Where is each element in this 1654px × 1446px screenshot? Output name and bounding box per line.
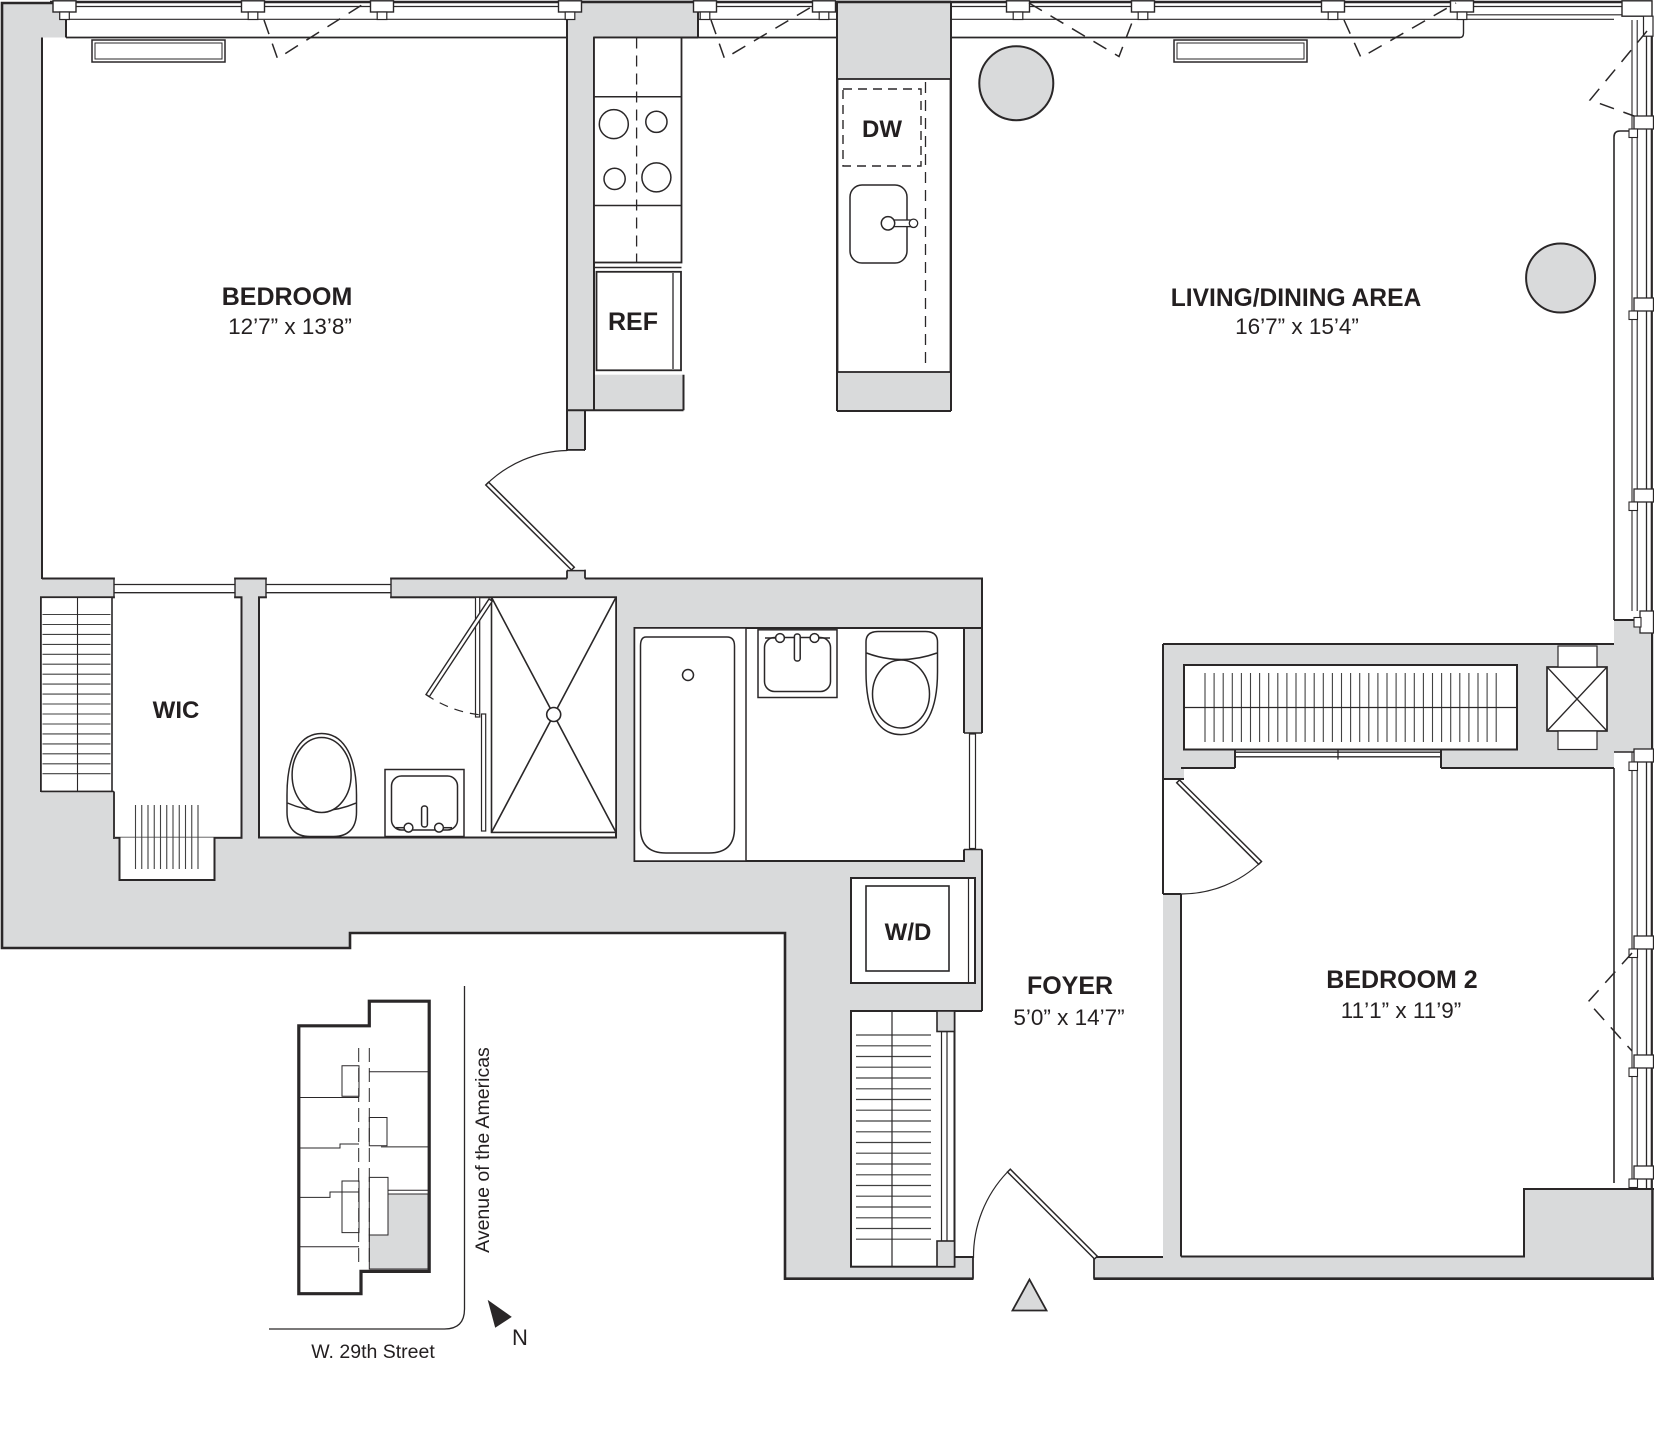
svg-text:LIVING/DINING AREA: LIVING/DINING AREA bbox=[1171, 285, 1422, 312]
svg-text:WIC: WIC bbox=[153, 697, 200, 724]
svg-text:5’0” x 14’7”: 5’0” x 14’7” bbox=[1013, 1005, 1124, 1030]
svg-text:Avenue of the Americas: Avenue of the Americas bbox=[472, 1047, 494, 1253]
svg-text:REF: REF bbox=[608, 308, 658, 336]
svg-text:W/D: W/D bbox=[885, 919, 932, 946]
svg-text:N: N bbox=[512, 1325, 528, 1350]
svg-text:DW: DW bbox=[862, 116, 902, 143]
svg-text:W. 29th Street: W. 29th Street bbox=[311, 1341, 435, 1363]
svg-text:FOYER: FOYER bbox=[1027, 972, 1113, 1000]
svg-text:16’7” x 15’4”: 16’7” x 15’4” bbox=[1235, 314, 1359, 339]
svg-text:BEDROOM 2: BEDROOM 2 bbox=[1326, 966, 1477, 994]
svg-text:11’1” x 11’9”: 11’1” x 11’9” bbox=[1341, 998, 1461, 1023]
svg-text:12’7” x 13’8”: 12’7” x 13’8” bbox=[228, 314, 352, 339]
svg-text:BEDROOM: BEDROOM bbox=[222, 283, 353, 311]
